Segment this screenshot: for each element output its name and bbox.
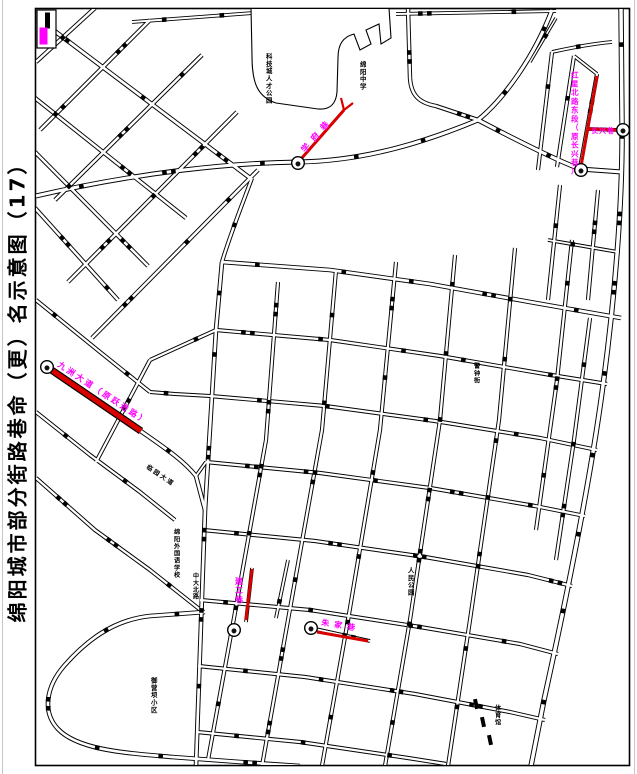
road-tick	[617, 221, 622, 226]
road-tick	[257, 398, 262, 403]
road-tick	[417, 624, 422, 629]
area-label: 中大北路	[193, 572, 200, 601]
road-tick	[174, 612, 179, 617]
road-tick	[485, 495, 490, 500]
road-tick	[541, 699, 546, 704]
road-tick	[171, 169, 176, 174]
road-tick	[493, 438, 498, 443]
road-tick	[234, 531, 239, 536]
street-label: 建工巷	[234, 576, 244, 604]
road-tick	[553, 223, 558, 228]
marker-glyph: ●	[578, 166, 584, 174]
road-tick	[217, 291, 222, 296]
road-tick	[475, 564, 480, 569]
road-tick	[408, 623, 413, 628]
road-tick	[565, 96, 570, 101]
road-tick	[426, 496, 431, 501]
road-tick	[46, 697, 51, 702]
road-tick	[593, 220, 598, 225]
road-tick	[574, 307, 579, 312]
marker-glyph: ●	[308, 624, 314, 632]
road-tick	[555, 376, 560, 381]
road-tick	[325, 404, 330, 409]
road-tick	[255, 262, 260, 267]
marker-glyph: ●	[620, 126, 626, 134]
road-tick	[463, 646, 468, 651]
road-tick	[461, 357, 466, 362]
road-tick	[313, 470, 318, 475]
street-label: 红星北路东段（原长兴巷）	[570, 70, 579, 176]
road-tick	[354, 154, 359, 159]
road-tick	[390, 297, 395, 302]
road-tick	[416, 558, 421, 563]
road-tick	[422, 554, 427, 559]
road-tick	[254, 464, 259, 469]
road-tick	[310, 479, 315, 484]
road-tick	[576, 44, 581, 49]
road-tick	[548, 372, 553, 377]
road-tick	[427, 487, 432, 492]
road-tick	[243, 760, 248, 765]
road-tick	[233, 605, 238, 610]
road-tick	[427, 11, 432, 16]
road-tick	[277, 599, 282, 604]
marker-glyph: ●	[295, 159, 301, 167]
road-tick	[418, 11, 423, 16]
road-tick	[454, 704, 459, 709]
road-tick	[612, 281, 617, 286]
road-tick	[259, 463, 264, 468]
road-tick	[545, 84, 550, 89]
road-tick	[318, 677, 323, 682]
road-tick	[571, 442, 576, 447]
road-tick	[247, 531, 252, 536]
road-tick	[216, 701, 221, 706]
area-label: 体育馆	[495, 704, 502, 726]
area-label: 绵阳中学	[360, 59, 367, 90]
marker-glyph: ●	[231, 626, 237, 634]
road-tick	[560, 512, 565, 517]
road-tick	[401, 348, 406, 353]
road-tick	[389, 306, 394, 311]
road-tick	[318, 337, 323, 342]
road-tick	[304, 469, 309, 474]
road-tick	[266, 400, 271, 405]
road-tick	[450, 489, 455, 494]
road-tick	[274, 303, 279, 308]
road-tick	[260, 161, 265, 166]
road-tick	[469, 702, 474, 707]
road-tick	[341, 269, 346, 274]
road-tick	[243, 668, 248, 673]
road-tick	[273, 312, 278, 317]
road-tick	[482, 291, 487, 296]
road-tick	[241, 330, 246, 335]
road-tick	[46, 706, 51, 711]
road-tick	[164, 391, 169, 396]
road-tick	[158, 754, 163, 759]
road-tick	[390, 720, 395, 725]
area-label: 科技城人才公园	[266, 51, 273, 104]
road-tick	[373, 478, 378, 483]
road-tick	[266, 409, 271, 414]
road-tick	[437, 417, 442, 422]
road-tick	[508, 297, 513, 302]
road-tick	[590, 452, 595, 457]
road-tick	[491, 293, 496, 298]
road-tick	[252, 761, 257, 766]
road-tick	[611, 290, 616, 295]
road-tick	[418, 549, 423, 554]
area-label: 警钟街	[473, 362, 481, 384]
road-tick	[423, 417, 428, 422]
road-tick	[212, 352, 217, 357]
road-tick	[450, 282, 455, 287]
road-tick	[328, 714, 333, 719]
road-tick	[382, 375, 387, 380]
legend-renamed-swatch	[40, 28, 48, 45]
road-tick	[257, 472, 262, 477]
road-tick	[79, 184, 84, 189]
road-tick	[330, 313, 335, 318]
road-tick	[328, 541, 333, 546]
road-tick	[444, 351, 449, 356]
road-tick	[565, 281, 570, 286]
road-tick	[619, 42, 624, 47]
road-tick	[196, 684, 201, 689]
road-tick	[356, 554, 361, 559]
road-tick	[407, 59, 412, 64]
area-label: 御营坝小区	[150, 675, 158, 713]
road-tick	[560, 608, 565, 613]
road-tick	[308, 607, 313, 612]
road-tick	[202, 528, 207, 533]
road-tick	[278, 656, 283, 661]
road-tick	[398, 689, 403, 694]
road-tick	[576, 532, 581, 537]
road-tick	[541, 473, 546, 478]
road-tick	[293, 577, 298, 582]
road-tick	[581, 362, 586, 367]
road-tick	[219, 13, 224, 18]
road-tick	[570, 242, 575, 247]
road-tick	[602, 371, 607, 376]
road-tick	[389, 688, 394, 693]
road-tick	[280, 647, 285, 652]
road-tick	[617, 212, 622, 217]
road-tick	[206, 455, 211, 460]
street-label: 长兴巷	[591, 126, 615, 135]
road-tick	[162, 170, 167, 175]
road-tick	[250, 331, 255, 336]
road-tick	[206, 446, 211, 451]
road-tick	[409, 279, 414, 284]
legend-road-swatch	[45, 13, 50, 29]
area-label: 绵阳外国语学校	[174, 528, 181, 579]
road-tick	[459, 491, 464, 496]
road-tick	[561, 503, 566, 508]
road-tick	[553, 385, 558, 390]
marker-glyph: ●	[44, 363, 50, 371]
road-tick	[337, 542, 342, 547]
road-tick	[502, 357, 507, 362]
road-tick	[265, 729, 270, 734]
road-tick	[387, 753, 392, 758]
road-tick	[223, 600, 228, 605]
road-tick	[477, 551, 482, 556]
road-tick	[199, 617, 204, 622]
road-tick	[245, 463, 250, 468]
road-tick	[162, 17, 167, 22]
road-tick	[501, 639, 506, 644]
road-tick	[267, 720, 272, 725]
road-tick	[234, 733, 239, 738]
road-tick	[514, 432, 519, 437]
road-tick	[94, 745, 99, 750]
road-tick	[528, 503, 533, 508]
city-map: ●●●●●● 红星北路东段（原长兴巷）长兴巷学府巷九洲大道（原跃进路）建工巷朱家…	[0, 0, 637, 774]
road-tick	[512, 9, 517, 14]
legend-box	[37, 10, 56, 48]
road-tick	[202, 537, 207, 542]
road-tick	[407, 50, 412, 55]
road-tick	[592, 229, 597, 234]
road-tick	[300, 740, 305, 745]
road-tick	[370, 470, 375, 475]
road-tick	[199, 608, 204, 613]
road-tick	[413, 553, 418, 558]
area-label: 人民公园	[408, 566, 415, 596]
map-page: 绵阳城市部分街路巷命（更）名示意图（17） ●●●●●● 红星北路东段（原长兴巷…	[0, 0, 637, 774]
